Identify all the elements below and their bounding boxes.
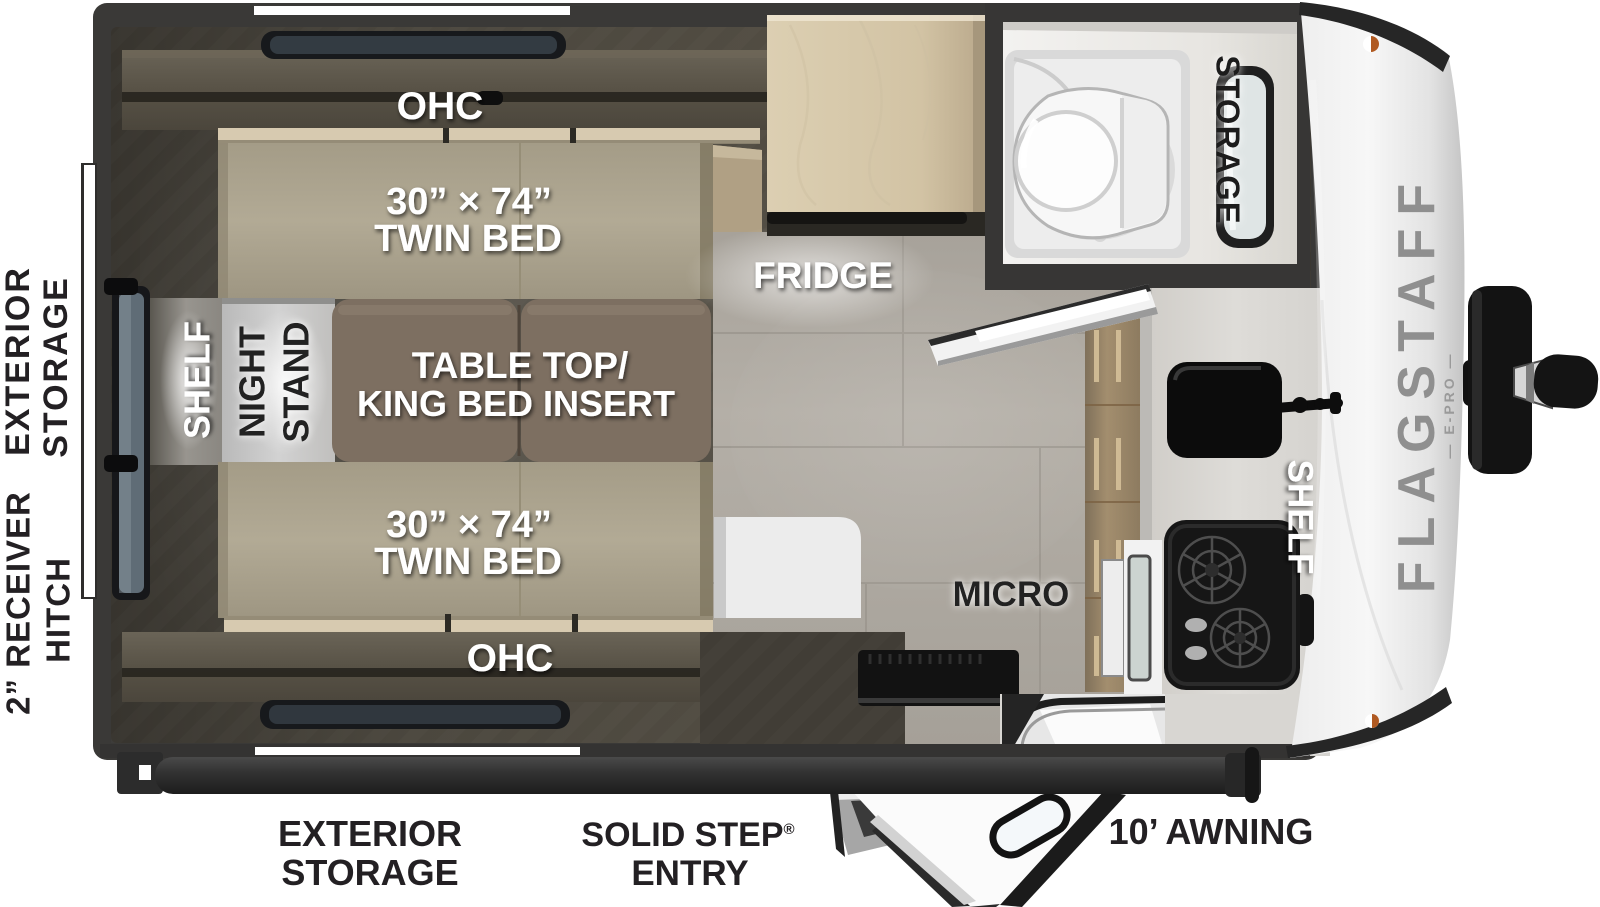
- svg-text:30” × 74”: 30” × 74”: [386, 504, 552, 546]
- svg-text:TABLE TOP/: TABLE TOP/: [412, 345, 629, 386]
- svg-text:MICRO: MICRO: [953, 575, 1070, 614]
- svg-text:STORAGE: STORAGE: [1210, 55, 1247, 225]
- svg-text:TWIN BED: TWIN BED: [374, 218, 562, 260]
- svg-text:EXTERIOR: EXTERIOR: [0, 266, 37, 456]
- svg-text:OHC: OHC: [397, 85, 484, 128]
- svg-text:SHELF: SHELF: [177, 321, 218, 439]
- svg-text:STORAGE: STORAGE: [281, 852, 458, 893]
- svg-text:FLAGSTAFF: FLAGSTAFF: [1388, 171, 1446, 593]
- svg-text:SOLID STEP®: SOLID STEP®: [581, 816, 794, 854]
- svg-text:STORAGE: STORAGE: [37, 276, 75, 458]
- svg-text:— E-PRO —: — E-PRO —: [1441, 351, 1457, 458]
- svg-text:SHELF: SHELF: [1281, 460, 1320, 575]
- svg-text:10’ AWNING: 10’ AWNING: [1109, 811, 1314, 852]
- svg-text:2” RECEIVER: 2” RECEIVER: [0, 491, 37, 715]
- svg-text:HITCH: HITCH: [40, 557, 77, 663]
- svg-text:STAND: STAND: [276, 321, 317, 442]
- svg-text:TWIN BED: TWIN BED: [374, 541, 562, 583]
- svg-text:ENTRY: ENTRY: [631, 854, 748, 893]
- svg-text:NIGHT: NIGHT: [232, 326, 273, 438]
- svg-text:KING BED INSERT: KING BED INSERT: [357, 383, 675, 424]
- svg-text:EXTERIOR: EXTERIOR: [278, 813, 462, 854]
- svg-text:30” × 74”: 30” × 74”: [386, 181, 552, 223]
- svg-text:OHC: OHC: [467, 637, 554, 680]
- svg-text:FRIDGE: FRIDGE: [753, 255, 893, 296]
